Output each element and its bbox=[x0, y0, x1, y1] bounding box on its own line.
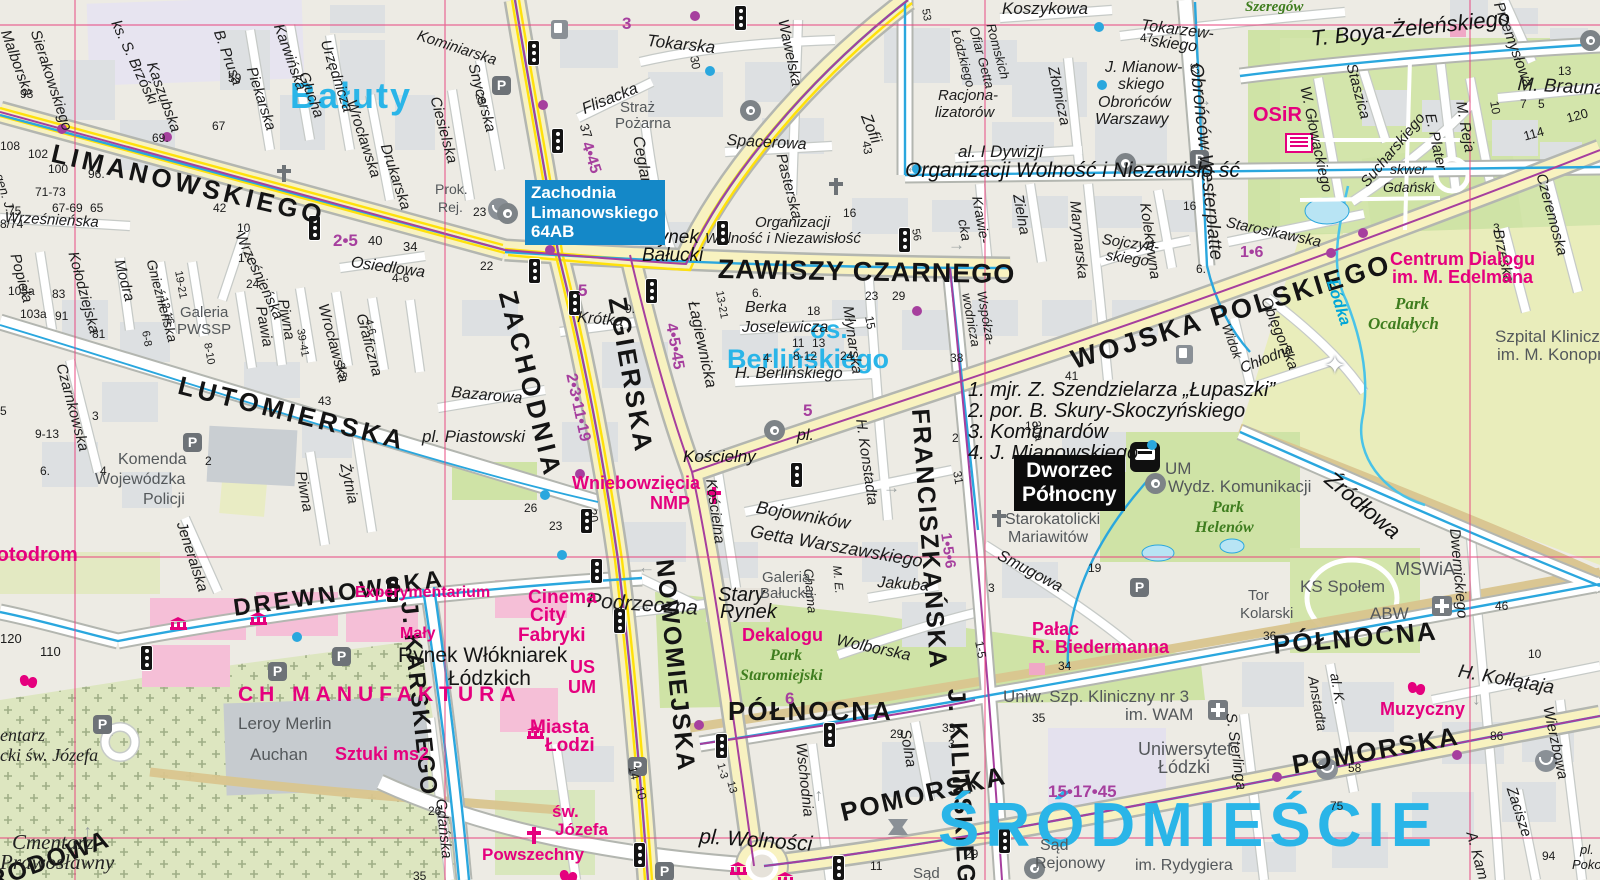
station-board-line: Północny bbox=[1022, 483, 1117, 507]
city-map-canvas[interactable]: PPPPPPPPP✦→→→→→→→→→→→ LIMANOWSKIEGOZAWIS… bbox=[0, 0, 1600, 880]
dotp-icon bbox=[545, 245, 555, 255]
stop-icon[interactable] bbox=[613, 608, 626, 634]
arrow-icon: → bbox=[1195, 91, 1212, 111]
psign-icon: P bbox=[332, 647, 351, 666]
psign-icon: P bbox=[268, 662, 287, 681]
psign-icon: P bbox=[1190, 150, 1209, 169]
psign-icon: P bbox=[628, 757, 647, 776]
masks-icon bbox=[1408, 682, 1426, 696]
dotb-icon bbox=[1097, 80, 1107, 90]
arrow-icon: → bbox=[1469, 692, 1489, 709]
psign-icon: P bbox=[492, 76, 511, 95]
stop-icon[interactable] bbox=[734, 5, 747, 31]
mus-icon bbox=[777, 872, 794, 880]
masks-icon bbox=[20, 675, 38, 689]
church-icon bbox=[827, 178, 844, 195]
sqpink-icon bbox=[1450, 25, 1466, 37]
dotp-icon bbox=[694, 720, 704, 730]
dotp-icon bbox=[912, 306, 922, 316]
stop-icon[interactable] bbox=[386, 577, 399, 603]
stop-board-line: Zachodnia bbox=[531, 183, 659, 203]
eye-icon bbox=[740, 100, 761, 121]
stop-icon[interactable] bbox=[568, 290, 581, 316]
stop-icon[interactable] bbox=[140, 645, 153, 671]
stop-icon[interactable] bbox=[998, 828, 1011, 854]
dotp-icon bbox=[1358, 228, 1368, 238]
sqpink-icon bbox=[1029, 663, 1045, 675]
dotp-icon bbox=[162, 132, 172, 142]
stop-icon[interactable] bbox=[633, 842, 646, 868]
star8-icon: ✦ bbox=[1324, 350, 1346, 381]
dotb-icon bbox=[912, 164, 922, 174]
eye-icon bbox=[1580, 30, 1600, 51]
eye-icon bbox=[1024, 858, 1045, 879]
psign-icon: P bbox=[1130, 578, 1149, 597]
arrow-icon: → bbox=[76, 824, 96, 841]
mus-icon bbox=[730, 862, 747, 875]
arrow-icon: → bbox=[807, 788, 827, 805]
tram-stop-board[interactable]: Zachodnia Limanowskiego 64AB bbox=[525, 180, 665, 245]
eye-icon bbox=[764, 420, 785, 441]
dotb-icon bbox=[557, 550, 567, 560]
card-icon bbox=[1285, 133, 1313, 153]
arrow-icon: → bbox=[883, 478, 900, 498]
stop-icon[interactable] bbox=[832, 855, 845, 880]
churchm-icon bbox=[525, 827, 542, 844]
stop-icon[interactable] bbox=[590, 558, 603, 584]
dotp-icon bbox=[57, 124, 67, 134]
stop-icon[interactable] bbox=[790, 462, 803, 488]
fuel-icon bbox=[1176, 345, 1193, 364]
mus-icon bbox=[250, 612, 267, 625]
psign-icon: P bbox=[183, 433, 202, 452]
stop-icon[interactable] bbox=[823, 722, 836, 748]
church-icon bbox=[275, 165, 292, 182]
dotb-icon bbox=[1094, 22, 1104, 32]
churchm-icon bbox=[705, 487, 722, 504]
stop-icon[interactable] bbox=[580, 508, 593, 534]
arrow-icon: → bbox=[948, 235, 965, 255]
stop-icon[interactable] bbox=[527, 40, 540, 66]
dotp-icon bbox=[1326, 248, 1336, 258]
stop-icon[interactable] bbox=[898, 227, 911, 253]
hosp-icon bbox=[1208, 700, 1228, 720]
dotp-icon bbox=[1272, 772, 1282, 782]
stop-icon[interactable] bbox=[716, 220, 729, 246]
arrow-icon: → bbox=[635, 596, 652, 616]
stop-icon[interactable] bbox=[528, 258, 541, 284]
stop-icon[interactable] bbox=[308, 215, 321, 241]
dotb-icon bbox=[705, 66, 715, 76]
stop-icon[interactable] bbox=[551, 128, 564, 154]
dotb-icon bbox=[540, 490, 550, 500]
dotp-icon bbox=[690, 11, 700, 21]
eye-icon bbox=[497, 203, 518, 224]
dotp-icon bbox=[575, 469, 585, 479]
eye-icon bbox=[1115, 153, 1136, 174]
eye-icon bbox=[1145, 473, 1166, 494]
psign-icon: P bbox=[93, 715, 112, 734]
station-board-line: Dworzec bbox=[1022, 459, 1117, 483]
pharm-icon bbox=[1535, 750, 1557, 772]
stop-icon[interactable] bbox=[645, 278, 658, 304]
pharm-icon bbox=[1316, 758, 1338, 780]
hosp-icon bbox=[1432, 596, 1452, 616]
psign-icon: P bbox=[655, 862, 674, 880]
starj-icon bbox=[888, 817, 908, 837]
stop-board-line: Limanowskiego bbox=[531, 203, 659, 223]
dotb-icon bbox=[1147, 440, 1157, 450]
arrow-icon: → bbox=[775, 212, 792, 232]
stop-board-line: 64AB bbox=[531, 222, 659, 242]
arrow-icon: → bbox=[243, 260, 263, 277]
church-icon bbox=[990, 510, 1007, 527]
dotp-icon bbox=[1452, 750, 1462, 760]
arrow-icon: → bbox=[638, 562, 655, 582]
masks-icon bbox=[560, 870, 578, 880]
bus-station-board[interactable]: Dworzec Północny bbox=[1014, 455, 1125, 511]
fuel-icon bbox=[551, 20, 568, 39]
mus-icon bbox=[170, 617, 187, 630]
mus-icon bbox=[527, 726, 544, 739]
stop-icon[interactable] bbox=[715, 733, 728, 759]
marker-layer: PPPPPPPPP✦→→→→→→→→→→→ bbox=[0, 0, 1600, 880]
dotb-icon bbox=[292, 632, 302, 642]
dotp-icon bbox=[538, 100, 548, 110]
